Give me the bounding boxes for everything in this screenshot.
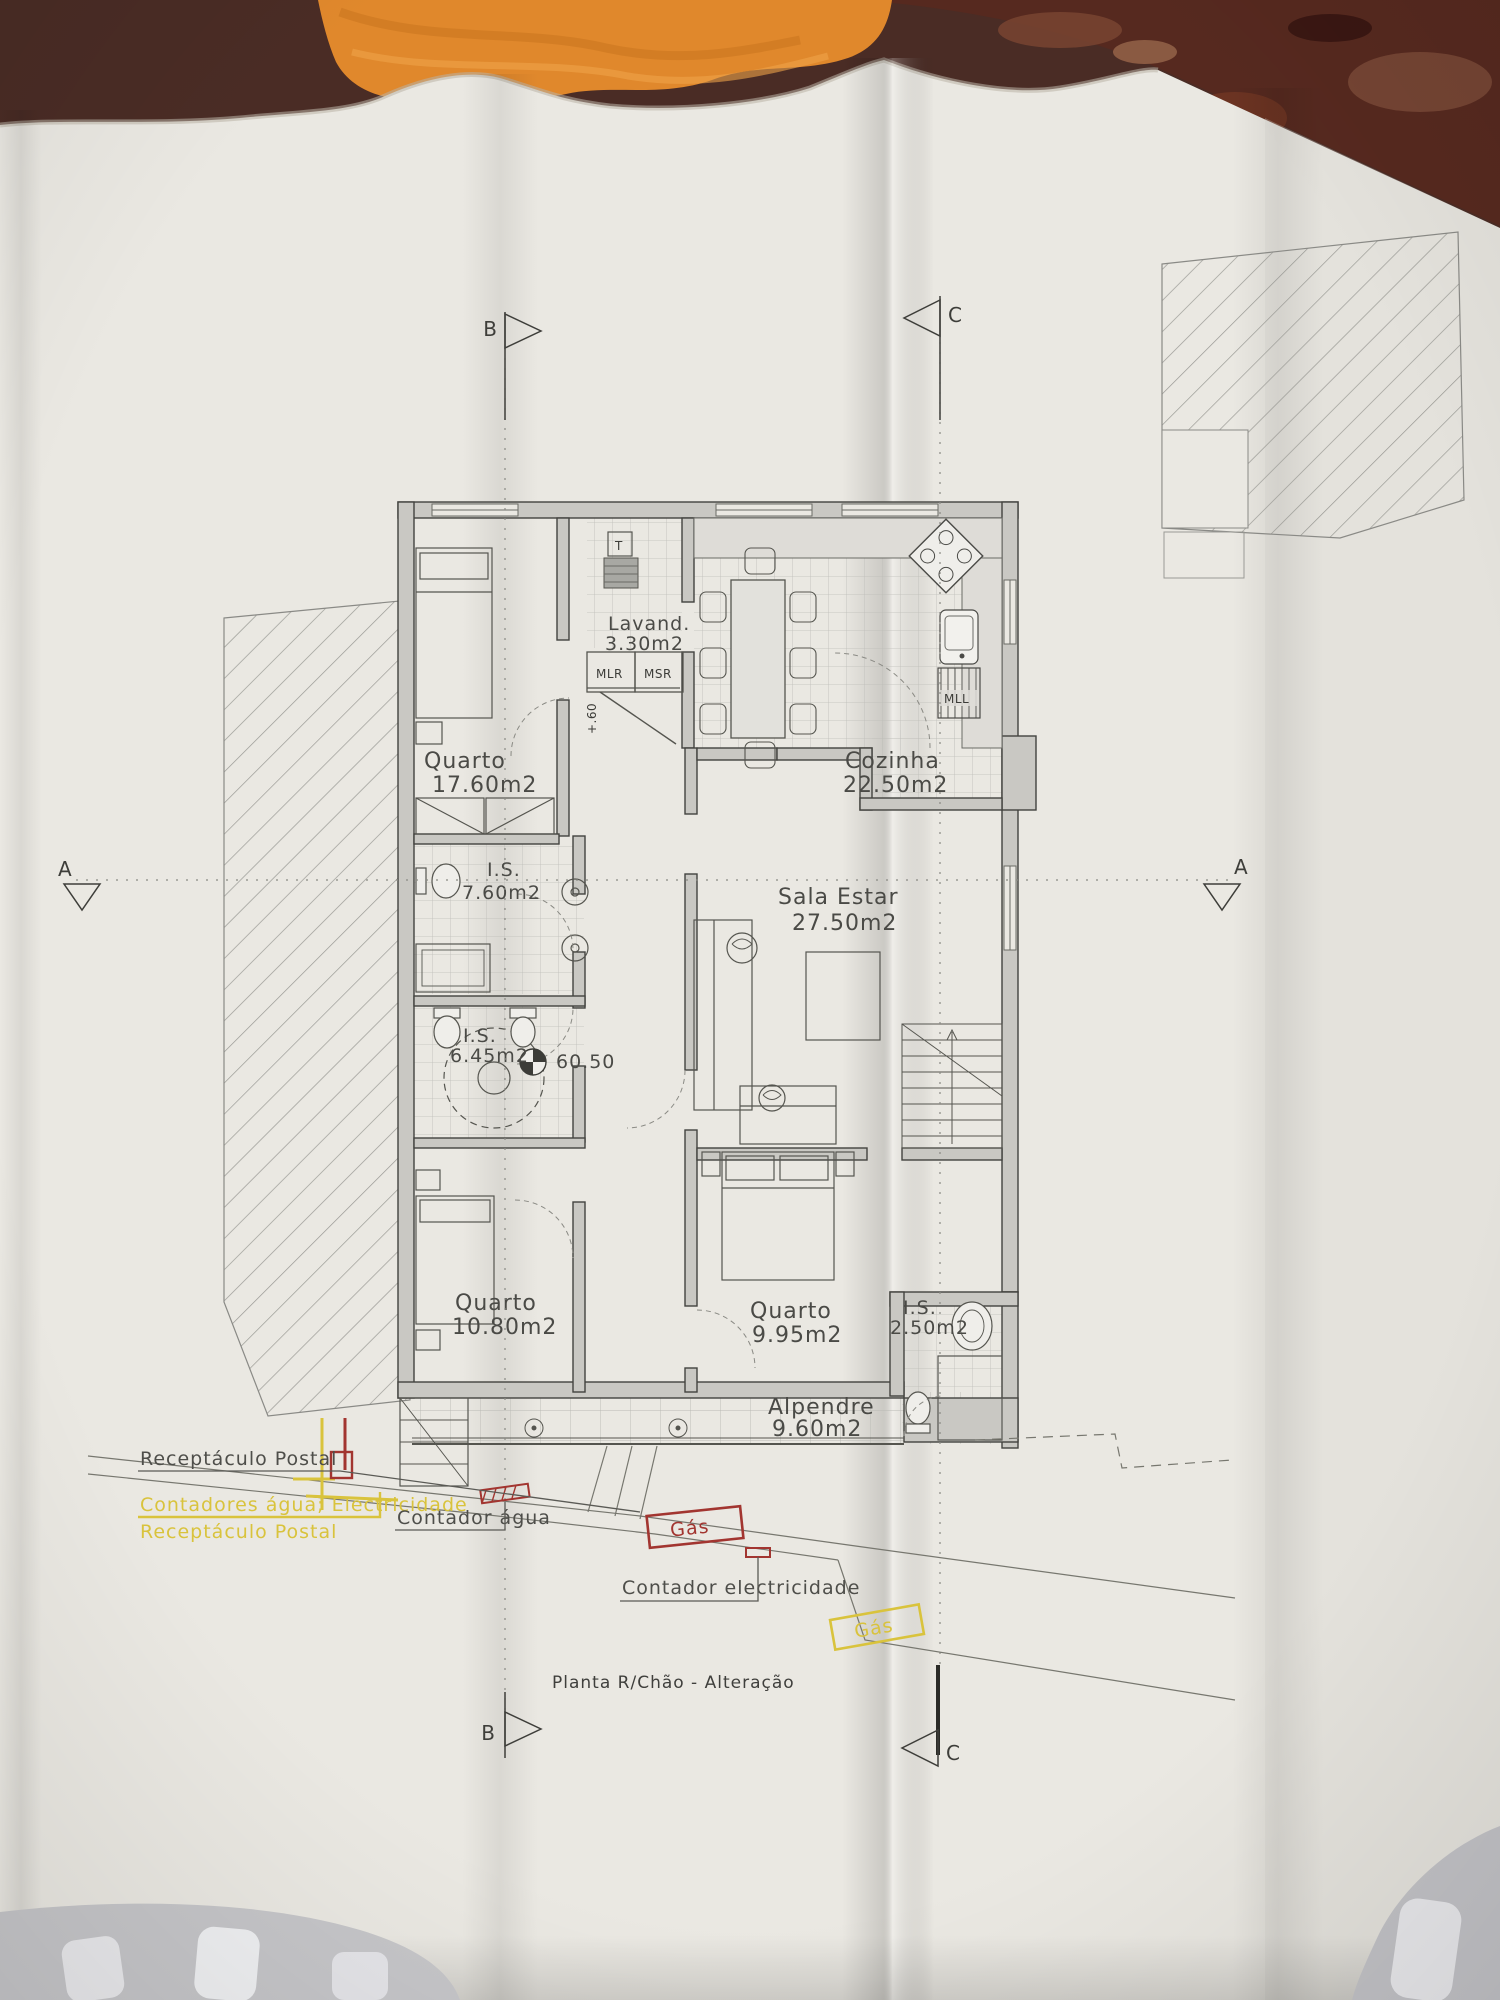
scene: T +.60 MLR MSR MLL (0, 0, 1500, 2000)
photo-of-floor-plan: T +.60 MLR MSR MLL (0, 0, 1500, 2000)
photo-vignette (0, 0, 1500, 2000)
